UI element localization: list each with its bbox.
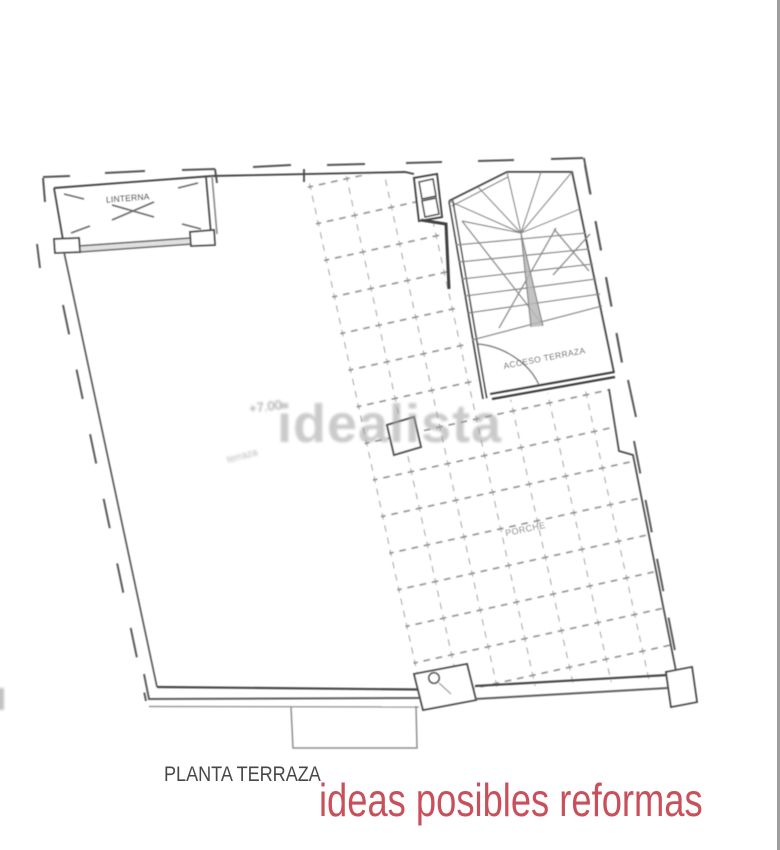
svg-text:LINTERNA: LINTERNA [106, 191, 150, 204]
svg-text:idealista: idealista [277, 394, 502, 454]
svg-text:ideas posibles reformas: ideas posibles reformas [319, 774, 703, 826]
svg-text:PLANTA TERRAZA: PLANTA TERRAZA [164, 763, 322, 787]
svg-text:terraza: terraza [226, 447, 259, 466]
